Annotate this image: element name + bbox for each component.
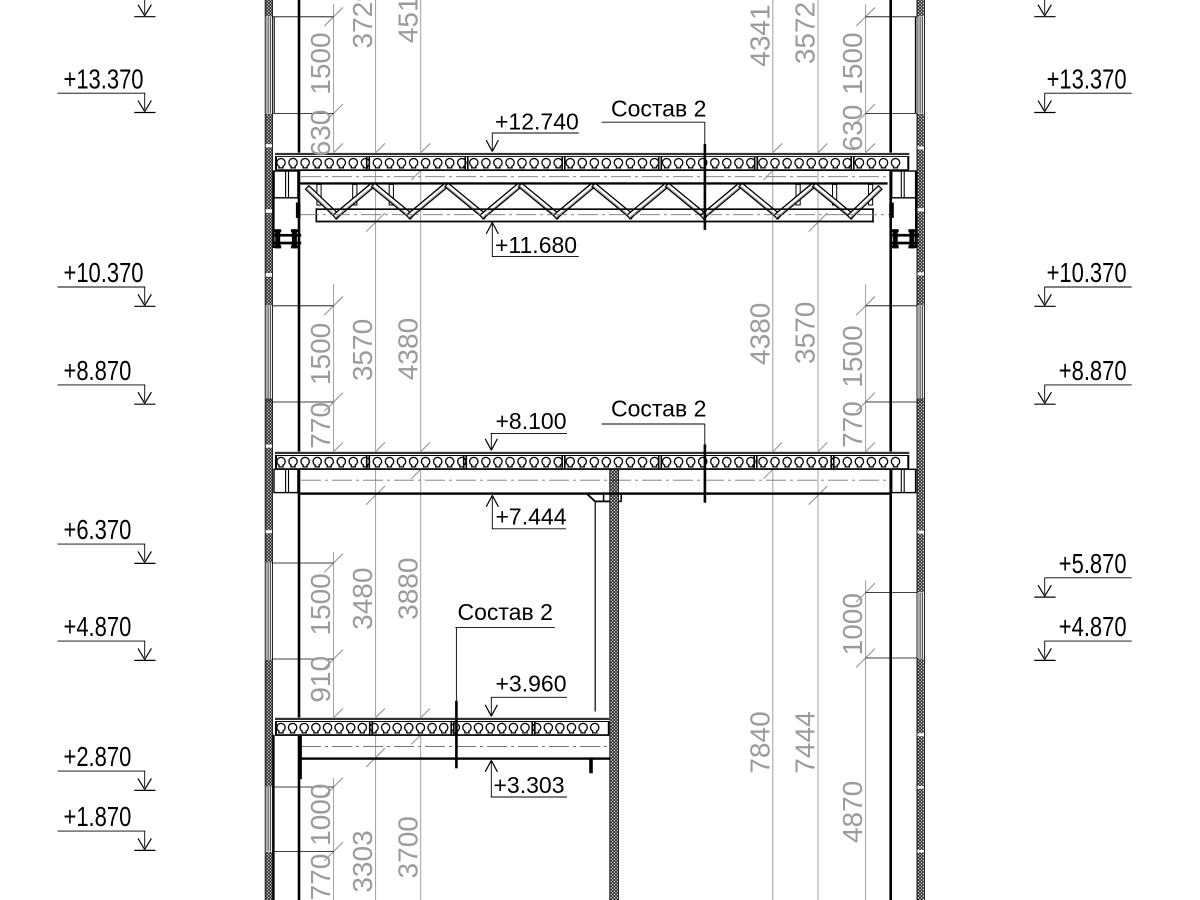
svg-text:+11.680: +11.680 <box>495 232 577 258</box>
svg-text:3572: 3572 <box>790 2 821 64</box>
svg-text:4380: 4380 <box>744 303 775 365</box>
svg-text:7840: 7840 <box>744 711 775 773</box>
svg-text:+6.370: +6.370 <box>64 515 132 546</box>
svg-text:3700: 3700 <box>392 816 423 878</box>
svg-text:3729: 3729 <box>347 0 378 48</box>
svg-text:+3.303: +3.303 <box>494 772 565 798</box>
svg-text:7444: 7444 <box>790 711 821 773</box>
svg-text:770: 770 <box>305 402 336 449</box>
svg-text:+10.370: +10.370 <box>1047 258 1127 289</box>
svg-text:1500: 1500 <box>305 323 336 385</box>
svg-text:+5.870: +5.870 <box>1059 548 1127 579</box>
svg-text:+4.870: +4.870 <box>1059 612 1127 643</box>
svg-text:+7.444: +7.444 <box>496 504 567 530</box>
svg-text:Состав 2: Состав 2 <box>611 395 706 421</box>
svg-text:+3.960: +3.960 <box>496 671 567 697</box>
svg-text:1500: 1500 <box>837 32 868 94</box>
svg-text:+13.370: +13.370 <box>1047 64 1127 95</box>
svg-text:4516: 4516 <box>392 0 423 43</box>
svg-text:630: 630 <box>837 105 868 152</box>
svg-text:+10.370: +10.370 <box>64 258 144 289</box>
svg-text:3880: 3880 <box>392 558 423 620</box>
svg-text:+4.870: +4.870 <box>64 612 132 643</box>
svg-text:1000: 1000 <box>837 593 868 655</box>
svg-text:910: 910 <box>305 656 336 703</box>
svg-text:1000: 1000 <box>305 784 336 846</box>
svg-text:770: 770 <box>837 401 868 448</box>
svg-text:4870: 4870 <box>837 781 868 843</box>
svg-text:1500: 1500 <box>305 32 336 94</box>
svg-text:+13.370: +13.370 <box>64 64 144 95</box>
svg-text:770: 770 <box>305 854 336 900</box>
svg-text:+12.740: +12.740 <box>495 109 579 135</box>
svg-text:3303: 3303 <box>347 830 378 892</box>
svg-text:630: 630 <box>305 110 336 157</box>
svg-text:+8.870: +8.870 <box>64 356 132 387</box>
svg-text:+8.870: +8.870 <box>1059 356 1127 387</box>
svg-text:Состав 2: Состав 2 <box>611 96 706 122</box>
svg-text:3570: 3570 <box>347 319 378 381</box>
svg-text:+8.100: +8.100 <box>496 408 567 434</box>
svg-text:1500: 1500 <box>305 573 336 635</box>
svg-text:1500: 1500 <box>837 325 868 387</box>
svg-text:+1.870: +1.870 <box>64 802 132 833</box>
svg-text:4380: 4380 <box>392 318 423 380</box>
svg-text:4341: 4341 <box>744 4 775 66</box>
svg-text:3570: 3570 <box>790 302 821 364</box>
svg-text:3480: 3480 <box>347 568 378 630</box>
svg-text:+2.870: +2.870 <box>64 742 132 773</box>
svg-text:Состав 2: Состав 2 <box>458 599 553 625</box>
